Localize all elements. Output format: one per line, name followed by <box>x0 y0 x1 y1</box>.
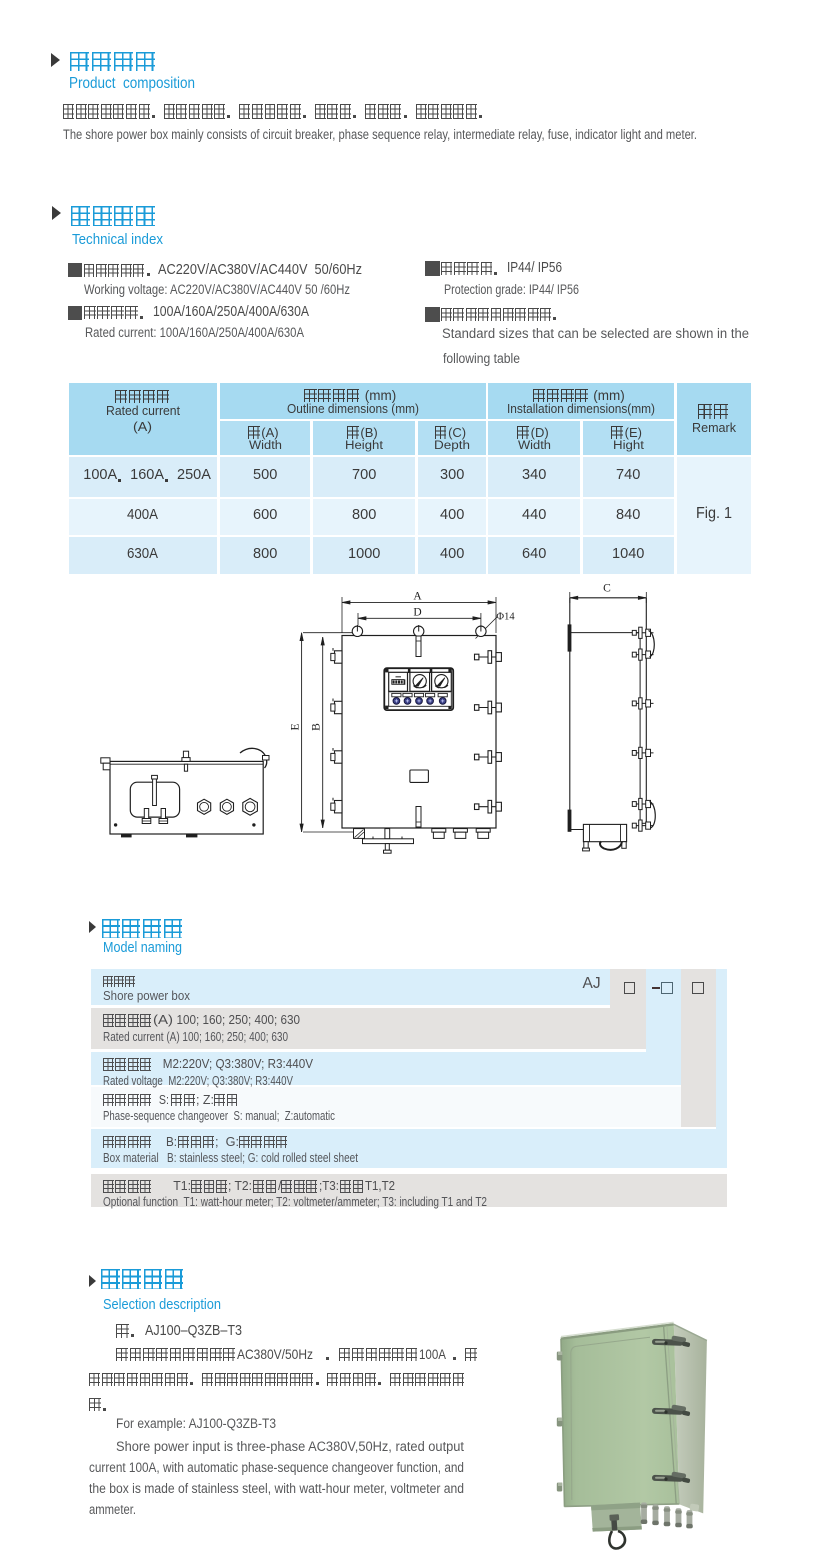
svg-text:C: C <box>603 583 611 595</box>
svg-text:D: D <box>413 607 421 619</box>
svg-text:E: E <box>290 723 302 730</box>
svg-text:A: A <box>413 591 422 603</box>
svg-text:B: B <box>311 723 323 731</box>
svg-text:Φ14: Φ14 <box>496 612 515 623</box>
